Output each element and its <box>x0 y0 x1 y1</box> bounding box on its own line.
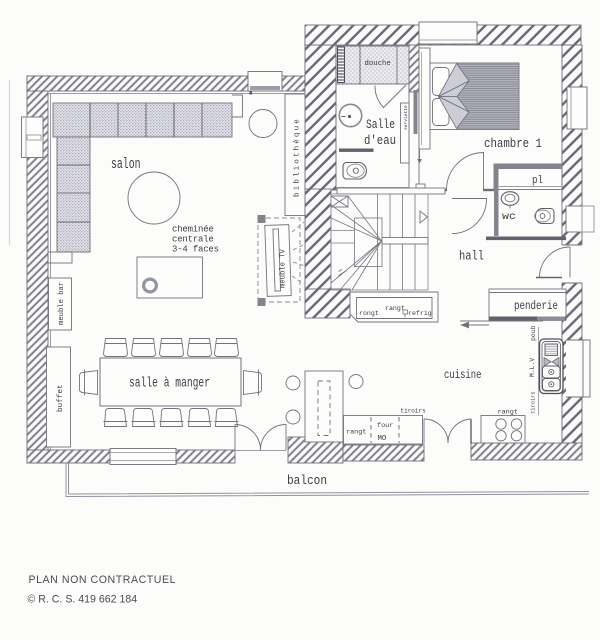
svg-text:tiroirs: tiroirs <box>531 391 537 414</box>
svg-text:serviette: serviette <box>403 105 409 130</box>
svg-text:four: four <box>377 422 393 430</box>
svg-text:penderie: penderie <box>514 300 558 313</box>
svg-text:tiroirs: tiroirs <box>401 408 427 415</box>
svg-text:© R. C. S. 419 662 184: © R. C. S. 419 662 184 <box>28 594 138 606</box>
svg-text:PLAN NON CONTRACTUEL: PLAN NON CONTRACTUEL <box>29 574 177 586</box>
svg-text:M.L.V: M.L.V <box>529 358 536 377</box>
svg-text:pl: pl <box>532 175 543 187</box>
svg-text:cheminée: cheminée <box>172 225 214 235</box>
svg-text:rangt: rangt <box>385 305 405 312</box>
svg-text:meuble bar: meuble bar <box>58 282 66 325</box>
svg-text:buffet: buffet <box>57 384 65 412</box>
svg-text:bibliothèque: bibliothèque <box>294 117 302 197</box>
svg-text:hall: hall <box>459 249 484 264</box>
svg-text:rongt: rongt <box>359 310 379 317</box>
svg-text:salle à manger: salle à manger <box>129 376 210 392</box>
svg-text:rangt: rangt <box>498 409 518 417</box>
svg-text:meuble TV: meuble TV <box>280 248 288 288</box>
svg-text:douche: douche <box>365 60 391 68</box>
svg-text:3-4 faces: 3-4 faces <box>172 245 219 255</box>
svg-text:refrig: refrig <box>408 310 432 317</box>
svg-text:balcon: balcon <box>287 474 327 488</box>
svg-text:chambre 1: chambre 1 <box>484 137 542 151</box>
svg-text:rangt: rangt <box>346 429 366 437</box>
svg-text:cuisine: cuisine <box>444 369 482 382</box>
svg-text:Salle: Salle <box>366 118 395 132</box>
svg-text:salon: salon <box>111 157 141 173</box>
svg-text:poub: poub <box>530 325 537 341</box>
svg-text:centrale: centrale <box>172 235 214 245</box>
svg-text:wc: wc <box>502 212 516 223</box>
svg-text:MO: MO <box>378 435 387 443</box>
svg-text:d'eau: d'eau <box>364 134 396 148</box>
